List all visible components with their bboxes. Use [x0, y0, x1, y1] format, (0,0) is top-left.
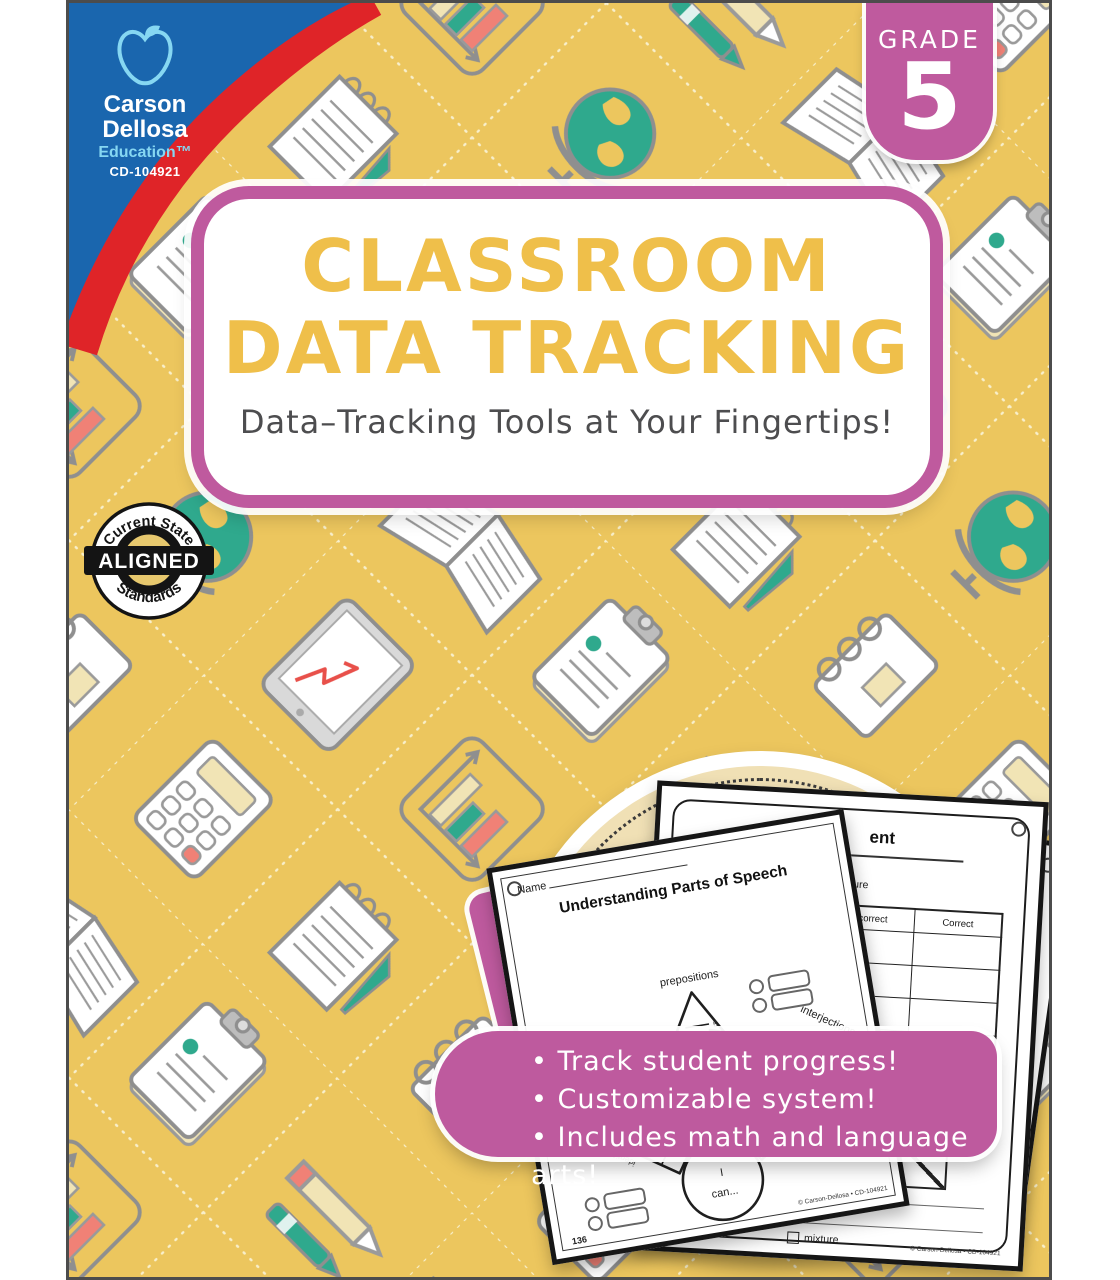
- feature-item: Track student progress!: [531, 1043, 997, 1081]
- brand-name-line3: Education™: [79, 142, 211, 164]
- publisher-logo: Carson Dellosa Education™ CD-104921: [79, 23, 211, 179]
- book-cover: an identify nd interpret nification. ent…: [66, 0, 1052, 1280]
- table-cell: [912, 932, 1001, 970]
- feature-item: Includes math and language arts!: [531, 1119, 997, 1195]
- apple-logo-icon: [114, 23, 176, 87]
- product-code: CD-104921: [79, 164, 211, 179]
- table-cell: [910, 965, 999, 1003]
- arrow-label-top: prepositions: [659, 968, 720, 990]
- feature-banner: Track student progress! Customizable sys…: [435, 1031, 997, 1157]
- checkbox-label: mixture: [804, 1232, 839, 1246]
- worksheet-middle-title-fragment: ent: [869, 827, 896, 848]
- grade-tab: GRADE 5: [866, 3, 993, 160]
- brand-name-line2: Dellosa: [79, 117, 211, 142]
- feature-item: Customizable system!: [531, 1081, 997, 1119]
- brand-name-line1: Carson: [79, 92, 211, 117]
- standards-aligned-badge: ALIGNED Current State Standards: [89, 501, 209, 621]
- badge-band-text: ALIGNED: [98, 550, 200, 573]
- feature-list: Track student progress! Customizable sys…: [435, 1031, 997, 1195]
- book-subtitle: Data–Tracking Tools at Your Fingertips!: [204, 403, 930, 441]
- checkbox-icon: [787, 1231, 800, 1244]
- checkbox-row: mixture: [787, 1231, 839, 1246]
- grade-number: 5: [866, 54, 993, 140]
- book-cover-stage: an identify nd interpret nification. ent…: [0, 0, 1120, 1280]
